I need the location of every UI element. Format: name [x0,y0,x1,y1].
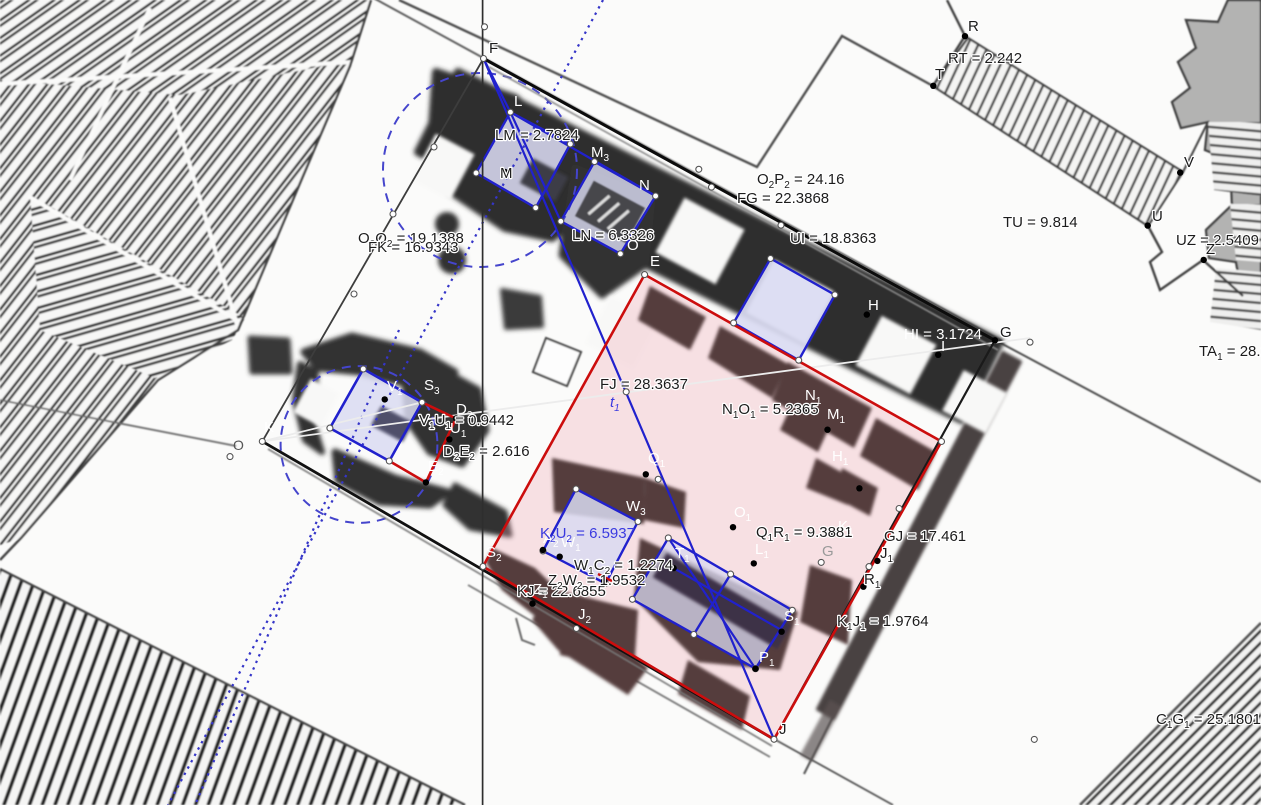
svg-text:LM = 2.7824: LM = 2.7824 [495,127,579,144]
svg-text:V: V [1184,154,1194,171]
svg-text:O: O [627,237,639,254]
svg-text:K: K [264,419,274,436]
svg-text:J: J [779,721,787,738]
svg-text:N: N [639,177,650,194]
svg-text:FG = 22.3868: FG = 22.3868 [737,190,829,207]
svg-text:U: U [1152,208,1163,225]
svg-text:G: G [822,543,834,560]
svg-text:H: H [868,297,879,314]
svg-text:FK = 16.9343: FK = 16.9343 [368,239,458,256]
svg-text:FJ = 28.3637: FJ = 28.3637 [600,376,688,393]
svg-text:UI = 18.8363: UI = 18.8363 [790,230,876,247]
svg-text:F: F [489,40,498,57]
svg-text:G: G [1000,324,1012,341]
svg-text:LN = 6.3326: LN = 6.3326 [572,227,654,244]
svg-text:RT = 2.242: RT = 2.242 [948,50,1022,67]
svg-text:E: E [650,253,660,270]
svg-text:O: O [233,437,244,453]
svg-text:I: I [941,338,945,355]
svg-text:UZ = 2.5409: UZ = 2.5409 [1176,232,1259,249]
svg-text:L: L [514,93,522,110]
svg-text:T: T [935,66,944,83]
svg-text:M: M [500,165,513,182]
svg-text:Z: Z [1206,241,1215,258]
svg-text:R: R [968,18,979,35]
svg-text:TU = 9.814: TU = 9.814 [1003,214,1078,231]
svg-text:GJ = 17.461: GJ = 17.461 [884,528,966,545]
